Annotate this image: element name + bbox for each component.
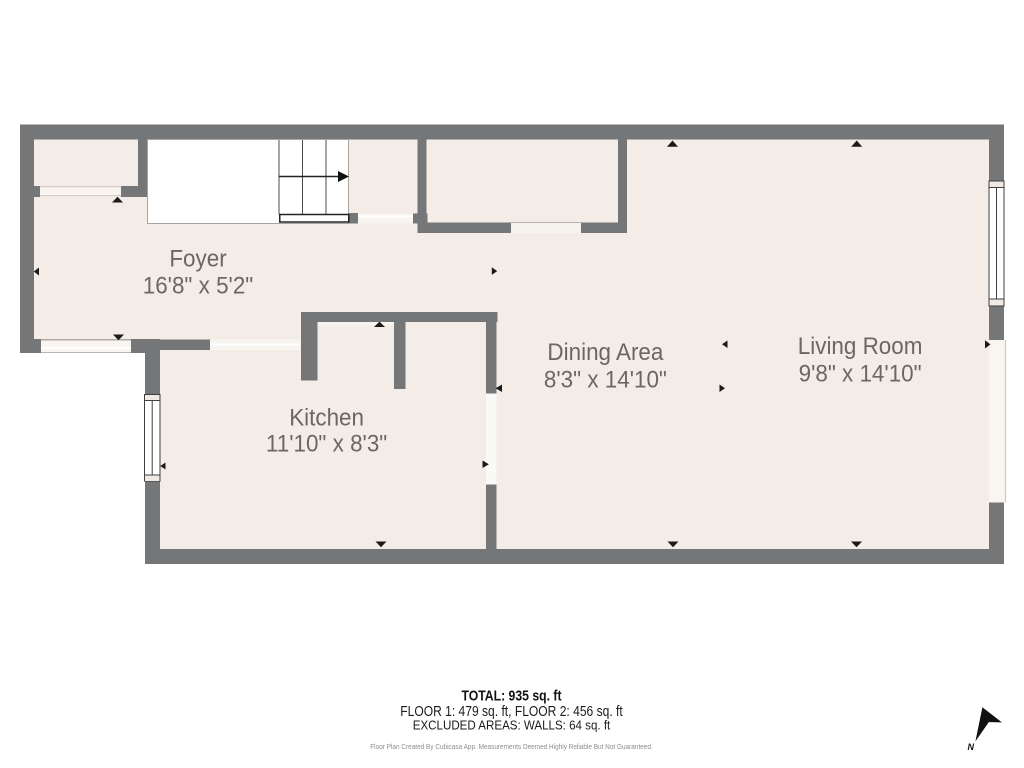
svg-text:Living Room: Living Room (798, 332, 923, 359)
svg-text:9'8" x 14'10": 9'8" x 14'10" (799, 360, 922, 387)
svg-text:Floor Plan Created By Cubicasa: Floor Plan Created By Cubicasa App. Meas… (370, 744, 653, 751)
svg-text:Kitchen: Kitchen (289, 404, 364, 431)
svg-text:8'3" x 14'10": 8'3" x 14'10" (544, 366, 667, 393)
svg-text:Dining Area: Dining Area (547, 338, 663, 365)
svg-text:EXCLUDED AREAS: WALLS: 64 sq.: EXCLUDED AREAS: WALLS: 64 sq. ft (413, 718, 611, 733)
svg-text:FLOOR 1: 479 sq. ft, FLOOR 2:: FLOOR 1: 479 sq. ft, FLOOR 2: 456 sq. ft (400, 703, 623, 719)
svg-text:11'10" x 8'3": 11'10" x 8'3" (266, 430, 387, 457)
svg-text:TOTAL: 935 sq. ft: TOTAL: 935 sq. ft (461, 687, 562, 703)
svg-text:16'8" x 5'2": 16'8" x 5'2" (143, 272, 254, 299)
svg-text:N: N (968, 742, 975, 752)
svg-text:Foyer: Foyer (169, 245, 227, 272)
